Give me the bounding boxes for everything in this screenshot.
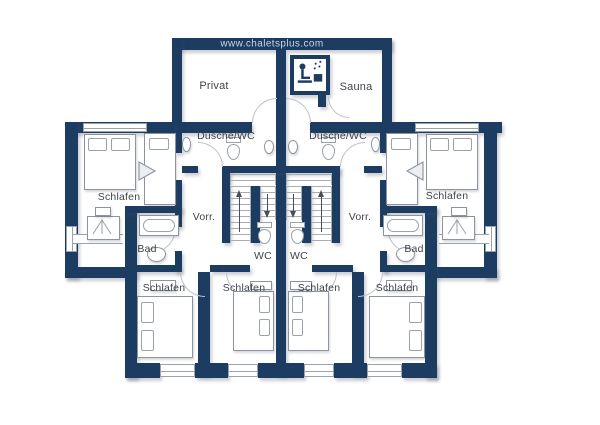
wall [312, 265, 340, 272]
room-label-wc-left: WC [254, 250, 272, 262]
sink-icon [371, 137, 380, 152]
watermark: www.chaletsplus.com [220, 39, 323, 50]
wall [484, 122, 497, 278]
room-label-schlafen-1: Schlafen [143, 282, 185, 294]
stair-down-arrow-icon [264, 190, 271, 218]
pillow [409, 302, 422, 323]
chair-icon [137, 160, 157, 182]
room-label-vorraum-left: Vorr. [193, 211, 216, 223]
door-arc [340, 142, 365, 167]
room-label-schlafen-2: Schlafen [223, 282, 265, 294]
door-arc [328, 97, 349, 118]
double-bed-icon [233, 291, 274, 351]
sink-icon [264, 140, 274, 154]
room-label-schlafen-3: Schlafen [298, 282, 340, 294]
room-label-dusche-wc-right: Dusche/WC [309, 130, 367, 142]
wall [382, 38, 392, 128]
pillow [292, 319, 303, 336]
room-label-dusche-wc-left: Dusche/WC [197, 130, 255, 142]
double-bed-icon [426, 134, 478, 190]
wall [318, 95, 326, 107]
wall [125, 206, 182, 213]
pillow [409, 330, 422, 351]
wall [402, 363, 437, 378]
room-label-bad-left: Bad [137, 243, 156, 255]
wall [364, 166, 382, 173]
sauna-icon [294, 59, 326, 91]
double-bed-icon [137, 296, 193, 358]
pillow [292, 296, 303, 313]
stair-up-arrow-icon [318, 190, 325, 236]
dresser-icon [442, 216, 475, 240]
wall [382, 265, 425, 272]
wall [222, 265, 250, 272]
wall [175, 133, 182, 153]
wall [125, 363, 160, 378]
floor-plan: www.chaletsplus.com Privat Sauna Dusche/… [0, 0, 600, 425]
dresser-fan-icon [443, 217, 472, 237]
wall [195, 363, 228, 378]
room-label-vorraum-right: Vorr. [349, 211, 372, 223]
pillow [391, 138, 411, 150]
wall [332, 166, 340, 243]
wall [334, 363, 367, 378]
wall [222, 166, 340, 173]
window [160, 364, 195, 377]
wall [137, 265, 180, 272]
bathtub-basin [387, 219, 419, 232]
bathtub-basin [143, 219, 175, 232]
room-label-schlafen-right: Schlafen [426, 190, 468, 202]
pillow [141, 330, 154, 351]
pillow [430, 138, 449, 151]
room-label-wc-right: WC [290, 250, 308, 262]
room-label-schlafen-left: Schlafen [98, 191, 140, 203]
window [415, 123, 479, 132]
pillow [453, 138, 472, 151]
lamp-icon [95, 207, 111, 216]
window [304, 364, 334, 377]
double-bed-icon [288, 291, 329, 351]
window [367, 364, 402, 377]
chair-icon [405, 160, 425, 182]
door-arc [286, 98, 311, 123]
wall [125, 206, 137, 378]
double-bed-icon [369, 296, 425, 358]
wall-central-divider [276, 50, 286, 375]
double-bed-icon [84, 134, 136, 190]
toilet-icon [257, 222, 272, 244]
dresser-icon [87, 216, 120, 240]
wall [340, 265, 353, 272]
pillow [141, 302, 154, 323]
sink-icon [288, 140, 298, 154]
room-label-sauna: Sauna [340, 81, 373, 93]
wall [380, 206, 437, 213]
pillow [111, 138, 130, 151]
stair-landing [286, 174, 332, 185]
stair-up-arrow-icon [236, 190, 243, 236]
room-label-bad-right: Bad [404, 243, 423, 255]
pillow [259, 319, 270, 336]
door-arc [252, 98, 277, 123]
wall [258, 363, 304, 378]
wall [210, 265, 222, 272]
pillow [259, 296, 270, 313]
pillow [88, 138, 107, 151]
stair-down-arrow-icon [290, 190, 297, 218]
sauna-cabin [290, 55, 330, 95]
lamp-icon [451, 207, 467, 216]
bathtub-icon [383, 215, 423, 236]
toilet-icon [290, 222, 305, 244]
pillow [149, 138, 169, 150]
room-label-privat: Privat [199, 80, 228, 92]
door-arc [198, 142, 223, 167]
window [83, 123, 147, 132]
wall [172, 38, 182, 128]
wall [65, 122, 78, 278]
room-label-schlafen-4: Schlafen [376, 282, 418, 294]
wall [425, 206, 437, 378]
wall [182, 166, 198, 173]
wall [222, 166, 230, 243]
stair-landing [230, 174, 276, 185]
window [228, 364, 258, 377]
sink-icon [182, 137, 191, 152]
dresser-fan-icon [88, 217, 117, 237]
bathtub-icon [139, 215, 179, 236]
